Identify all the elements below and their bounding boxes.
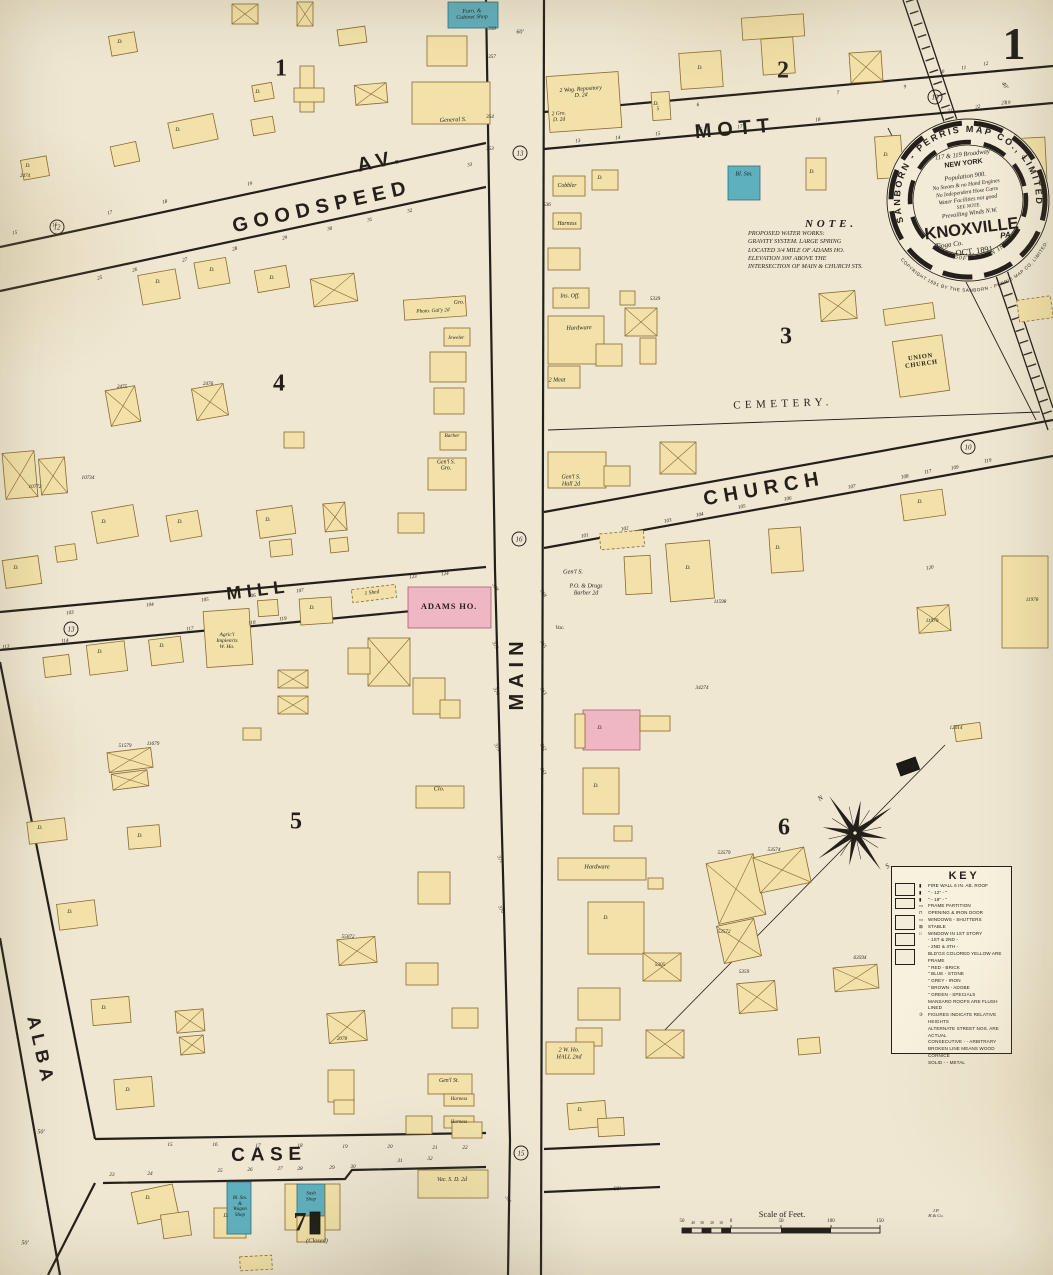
dwelling-label: D. <box>101 519 106 525</box>
lot-number: 30 <box>327 227 333 234</box>
building-label-warehouse-hall: 2 W. Ho. HALL 2nd <box>556 1047 581 1060</box>
building-label-shed: 1 Shed <box>364 589 379 597</box>
key-row-text: CONSECUTIVE - - ARBITRARY <box>928 1039 1009 1046</box>
lot-number: 2078 <box>337 1037 347 1043</box>
building-label-agricultural-implements-warehouse: Agric'l Implem'ts W. Ho. <box>216 632 237 650</box>
key-row-symbol <box>919 1039 928 1046</box>
scale-tick-30: 30 <box>700 1221 704 1225</box>
key-row-text: FIRE WALL 6 IN. AB. ROOF <box>928 883 1009 890</box>
lot-number: 23 <box>1001 101 1007 107</box>
lot-number: 10734 <box>82 476 95 482</box>
lot-number: 120 <box>926 565 935 572</box>
building-label-post-office-drugs: P.O. & Drugs Barber 2d <box>570 583 603 596</box>
lot-number: 32 <box>407 209 413 216</box>
circled-reference: 16 <box>512 532 527 547</box>
lot-number: 31 <box>367 218 373 225</box>
dwelling-label: D. <box>1021 155 1026 161</box>
key-row: ⊓OPENING & IRON DOOR <box>919 910 1009 917</box>
key-row: - 1ST & 2ND - <box>919 937 1009 944</box>
lot-number: 114 <box>61 639 69 646</box>
lot-number: 105 <box>201 598 209 605</box>
dwelling-label: D. <box>685 565 690 571</box>
dwelling-label: D. <box>309 605 314 611</box>
dwelling-label: D. <box>597 175 602 181</box>
lot-number: 53572 <box>718 930 731 936</box>
dwelling-label: D. <box>883 152 888 158</box>
lot-number: 357 <box>488 55 496 61</box>
note-body: PROPOSED WATER WORKS:GRAVITY SYSTEM. LAR… <box>742 230 920 272</box>
building-label-general-store-grocery: Gen'l S. Gro. <box>437 460 455 473</box>
lot-number: 378 <box>490 583 499 593</box>
key-row: ▭WINDOWS - SHUTTERS <box>919 917 1009 924</box>
key-row: ALTERNATE STREET NOS. ARE ACTUAL <box>919 1026 1009 1040</box>
street-label-church: CHURCH <box>702 467 827 510</box>
building-label-insurance-office: Ins. Off. <box>560 294 580 301</box>
lot-number: 104 <box>146 603 154 610</box>
lot-number: 353 <box>486 147 494 153</box>
lot-number: 27 <box>182 258 188 265</box>
scale-tick-100: 100 <box>827 1219 835 1225</box>
lot-number: 117 <box>924 469 932 476</box>
lot-number: 31 <box>397 1159 402 1165</box>
key-row: " BROWN - ADOBE <box>919 985 1009 992</box>
building-label-harness-2: Harness <box>451 1097 468 1103</box>
dwelling-label: D. <box>697 65 702 71</box>
lot-number: 21 <box>947 109 953 115</box>
lot-number: 12014 <box>950 726 963 732</box>
dwelling-label: D. <box>97 649 102 655</box>
building-label-vacant-store: Vac. S. D. 2d <box>437 1177 467 1183</box>
lot-number: 13 <box>575 139 581 145</box>
building-label-hardware-2: Hardware <box>584 863 609 870</box>
lot-number: 103 <box>66 611 74 618</box>
building-label-photo-gallery: Photo. Gal'y 2d <box>416 308 450 316</box>
dwelling-label: D. <box>177 519 182 525</box>
lot-number: 11598 <box>714 600 727 606</box>
lot-number: 119 <box>279 617 287 624</box>
lot-number: 2476 <box>203 382 213 388</box>
lot-number: 55072 <box>342 935 355 941</box>
block-number-1: 1 <box>275 56 287 83</box>
key-row: ③FIGURES INDICATE RELATIVE HEIGHTS <box>919 1012 1009 1026</box>
scale-tick-150: 150 <box>876 1219 884 1225</box>
water-works-note: NOTE. PROPOSED WATER WORKS:GRAVITY SYSTE… <box>742 218 920 272</box>
circled-reference: 12 <box>50 220 65 235</box>
lot-number: 21 <box>432 1146 437 1152</box>
lot-number: 24 <box>147 1172 152 1178</box>
lot-number: 18 <box>162 200 168 207</box>
lot-number: 11978 <box>1026 598 1039 604</box>
building-label-general-store-hall: Gen'l S. Hall 2d <box>562 474 581 487</box>
dwelling-label: D. <box>265 517 270 523</box>
lot-number: 12 <box>983 62 989 68</box>
key-row-text: " GREY - IRON <box>928 978 1009 985</box>
key-row: - 2ND & 4TH - <box>919 944 1009 951</box>
key-row: " GREEN - SPECIALS <box>919 992 1009 999</box>
key-row: CONSECUTIVE - - ARBITRARY <box>919 1039 1009 1046</box>
engraver-initials: J.P. H.& Co. <box>928 1208 943 1218</box>
circled-reference: 13 <box>64 622 79 637</box>
lot-number: 373 <box>490 641 499 651</box>
building-label-adams-house: ADAMS HO. <box>421 602 477 612</box>
labels-overlay: 1GOODSPEEDAV.MOTTCHURCHMILLMAINALBACASEC… <box>0 0 1053 1275</box>
key-row-symbol: ③ <box>919 1012 928 1026</box>
note-line: ELEVATION 300' ABOVE THE <box>742 255 920 263</box>
lot-number: 32 <box>427 1157 432 1163</box>
building-label-general-store-south: Gen'l St. <box>439 1078 459 1084</box>
street-label-goodspeed: GOODSPEED <box>230 176 413 237</box>
street-label-alba: ALBA <box>23 1014 59 1088</box>
lot-number: 103 <box>664 518 673 525</box>
lot-number: 371 <box>495 855 504 865</box>
key-row: " GREY - IRON <box>919 978 1009 985</box>
lot-number: 14 <box>615 136 621 142</box>
dwelling-label: D. <box>117 39 122 45</box>
lot-number: 124 <box>441 572 449 579</box>
key-symbol-sketch <box>895 915 915 930</box>
key-row-text: MANSARD ROOFS ARE FLUSH LINED <box>928 999 1009 1013</box>
building-label-general-store-main: Gen'l S. <box>563 568 583 575</box>
lot-number: 10772 <box>29 485 42 491</box>
key-row-text: WINDOW IN 1ST STORY <box>928 931 1009 938</box>
dwelling-label: D. <box>137 833 142 839</box>
building-label-meat: 2 Meat <box>549 378 566 385</box>
lot-number: 368 <box>538 589 547 599</box>
building-label-union-church: UNION CHURCH <box>904 352 939 371</box>
lot-number: 370 <box>496 905 505 915</box>
lot-number: 106 <box>784 496 793 503</box>
block-number-4: 4 <box>273 371 285 398</box>
lot-number: 5359 <box>739 970 749 976</box>
key-row-text: " - 12" - " <box>928 890 1009 897</box>
key-row: □WINDOW IN 1ST STORY <box>919 931 1009 938</box>
dwelling-label: D. <box>603 915 608 921</box>
building-label-grocery-2: Gro. <box>454 299 465 306</box>
key-row-symbol <box>919 944 928 951</box>
building-label-barber: Barber <box>444 434 459 440</box>
note-line: LOCATED 3/4 MILE OF ADAMS HO. <box>742 247 920 255</box>
block-number-7: 7 <box>294 1207 307 1236</box>
circled-reference: 19 <box>928 90 943 105</box>
lot-number: 374 <box>491 687 500 697</box>
lot-number: 7 <box>836 91 839 97</box>
building-label-blacksmith-wagon-shop: Bl. Sm. & Wagon Shop <box>233 1196 247 1218</box>
dwelling-label: D. <box>159 643 164 649</box>
lot-number: 311 <box>503 1195 512 1204</box>
street-width-60b: 60' <box>613 1187 620 1194</box>
key-row-symbol <box>919 985 928 992</box>
lot-number: 363 <box>538 687 547 697</box>
key-row-symbol: ▭ <box>919 917 928 924</box>
scale-tick-50l: 50 <box>680 1219 685 1225</box>
building-label-cobbler: Cobbler <box>557 183 576 189</box>
lot-number: 19 <box>247 182 253 189</box>
key-row-symbol: ▮ <box>919 890 928 897</box>
key-row-text: BLD'GS COLORED YELLOW ARE FRAME <box>928 951 1009 965</box>
key-row-text: ALTERNATE STREET NOS. ARE ACTUAL <box>928 1026 1009 1040</box>
key-symbol-sketch <box>895 933 915 946</box>
scale-tick-20: 20 <box>710 1221 714 1225</box>
dwelling-label: D. <box>775 545 780 551</box>
dwelling-label: D. <box>67 909 72 915</box>
block-number-3: 3 <box>780 324 792 351</box>
lot-number: 354 <box>486 115 494 121</box>
key-row-text: " BLUE - STONE <box>928 971 1009 978</box>
key-row-symbol <box>919 951 928 965</box>
street-width-60: 60' <box>516 30 523 37</box>
key-row-text: STABLE <box>928 924 1009 931</box>
street-label-mill: MILL <box>225 576 291 604</box>
dwelling-label: D. <box>125 1087 130 1093</box>
dwelling-label: D. <box>101 1005 106 1011</box>
dwelling-label: D. <box>255 89 260 95</box>
lot-number: 19 <box>342 1145 347 1151</box>
lot-number: 101 <box>581 533 590 540</box>
key-row-text: FIGURES INDICATE RELATIVE HEIGHTS <box>928 1012 1009 1026</box>
lot-number: 23 <box>109 1173 114 1179</box>
lot-number: 118 <box>248 621 256 628</box>
lot-number: 34274 <box>696 686 709 692</box>
lot-number: 15 <box>655 132 661 138</box>
lot-number: 28 <box>297 1167 302 1173</box>
lot-number: 17 <box>737 125 743 131</box>
lot-number: 102 <box>621 526 630 533</box>
lot-number: 107 <box>296 589 304 596</box>
lot-number: 536 <box>543 203 551 209</box>
lot-number: 109 <box>951 465 960 472</box>
key-row-text: OPENING & IRON DOOR <box>928 910 1009 917</box>
building-label-jeweler: Jeweler <box>448 336 464 342</box>
key-row: " BLUE - STONE <box>919 971 1009 978</box>
note-line: INTERSECTION OF MAIN & CHURCH STS. <box>742 263 920 271</box>
key-row-text: SOLID - - METAL <box>928 1060 1009 1067</box>
street-label-case: CASE <box>231 1144 307 1167</box>
lot-number: 15 <box>12 231 18 238</box>
dwelling-label: D. <box>145 1195 150 1201</box>
key-row-text: " GREEN - SPECIALS <box>928 992 1009 999</box>
circled-reference: 15 <box>514 1146 529 1161</box>
building-label-general-store: General S. <box>439 116 466 124</box>
lot-number: 25 <box>97 276 103 283</box>
lot-number: 15 <box>167 1143 172 1149</box>
lot-number: 25 <box>217 1169 222 1175</box>
lot-number: 108 <box>901 474 910 481</box>
key-row-symbol: ⊠ <box>919 924 928 931</box>
lot-number: 6 <box>696 103 699 109</box>
lot-number: 9 <box>903 85 906 91</box>
scale-tick-0: 0 <box>730 1219 733 1225</box>
building-label-hardware: Hardware <box>566 324 592 332</box>
key-row-symbol: ⊓ <box>919 910 928 917</box>
key-row-text: BROKEN LINE MEANS WOOD CORNICE <box>928 1046 1009 1060</box>
lot-number: 358 <box>488 27 496 33</box>
key-row-text: FRAME PARTITION <box>928 903 1009 910</box>
key-row: ▮FIRE WALL 6 IN. AB. ROOF <box>919 883 1009 890</box>
lot-number: 119 <box>984 458 992 465</box>
building-label-clothing: Clo. <box>434 785 445 792</box>
lot-number: 30 <box>350 1165 355 1171</box>
dwelling-label: D. <box>597 725 602 731</box>
dwelling-label: D. <box>223 1213 228 1219</box>
dwelling-label: D. <box>37 825 42 831</box>
note-title: NOTE. <box>742 218 920 230</box>
key-row: ▭FRAME PARTITION <box>919 903 1009 910</box>
lot-number: 361 <box>538 767 547 777</box>
lot-number: 362 <box>538 743 547 753</box>
cemetery-label: CEMETERY. <box>733 396 833 412</box>
lot-number: 106 <box>248 594 256 601</box>
lot-number: 11 <box>961 66 967 72</box>
key-row-text: " - 18" - " <box>928 897 1009 904</box>
dwelling-label: D. <box>653 101 658 107</box>
dwelling-label: D. <box>13 565 18 571</box>
lot-number: 26 <box>247 1168 252 1174</box>
building-label-furniture-cabinet-shop: Furn. & Cabinet Shop <box>456 8 488 22</box>
street-label-mott: MOTT <box>694 114 776 143</box>
key-row: BLD'GS COLORED YELLOW ARE FRAME <box>919 951 1009 965</box>
lot-number: 5 <box>656 107 659 113</box>
building-label-blacksmith: Bl. Sm. <box>735 172 752 179</box>
lot-number: 53579 <box>718 851 731 857</box>
key-row-symbol: ▭ <box>919 903 928 910</box>
key-row-symbol <box>919 1060 928 1067</box>
lot-number: 18 <box>297 1144 302 1150</box>
street-label-main: MAIN <box>506 635 528 710</box>
compass-north-letter: N <box>817 794 825 803</box>
lot-number: 2474 <box>20 174 30 180</box>
dwelling-label: D. <box>155 279 160 285</box>
lot-number: 365 <box>538 640 547 650</box>
key-row-symbol: ▮ <box>919 883 928 890</box>
key-row: ▮" - 12" - " <box>919 890 1009 897</box>
lot-number: 33 <box>467 163 473 170</box>
dwelling-label: D. <box>593 783 598 789</box>
lot-number: 375 <box>492 743 501 753</box>
street-width-50a: 50' <box>37 1130 44 1137</box>
dwelling-label: D. <box>25 163 30 169</box>
key-row: SOLID - - METAL <box>919 1060 1009 1067</box>
closed-annotation: (Closed) <box>306 1237 328 1244</box>
key-row-symbol <box>919 1046 928 1060</box>
lot-number: 29 <box>329 1166 334 1172</box>
dwelling-label: D. <box>175 127 180 133</box>
lot-number: 5339 <box>650 297 660 303</box>
lot-number: 16 <box>697 128 703 134</box>
sheet-number: 1 <box>1003 18 1026 70</box>
circled-reference: 13 <box>513 146 528 161</box>
building-label-sash-shop: Sash Shop <box>306 1191 316 1202</box>
circled-reference: 10 <box>961 440 976 455</box>
lot-number: 20 <box>387 1145 392 1151</box>
lot-number: 51579 <box>119 744 132 750</box>
lot-number: 117 <box>186 627 194 634</box>
building-label-harness-3: Harness <box>451 1120 468 1126</box>
lot-number: 22 <box>462 1146 467 1152</box>
key-row-symbol <box>919 1026 928 1040</box>
lot-number: 63594 <box>854 956 867 962</box>
lot-number: 26 <box>132 268 138 275</box>
lot-number: 11979 <box>926 619 939 625</box>
dwelling-label: D. <box>577 1107 582 1113</box>
street-width-40: 40' <box>999 81 1009 91</box>
key-title: KEY <box>919 870 1009 882</box>
map-key-legend: KEY ▮FIRE WALL 6 IN. AB. ROOF▮" - 12" - … <box>891 866 1012 1054</box>
lot-number: 53574 <box>768 848 781 854</box>
key-row-symbol <box>919 978 928 985</box>
key-row: " RED - BRICK <box>919 965 1009 972</box>
lot-number: 104 <box>696 512 705 519</box>
key-row-text: " BROWN - ADOBE <box>928 985 1009 992</box>
key-row-text: WINDOWS - SHUTTERS <box>928 917 1009 924</box>
dwelling-label: D. <box>209 267 214 273</box>
key-row-text: - 2ND & 4TH - <box>928 944 1009 951</box>
lot-number: 107 <box>848 484 857 491</box>
key-row-symbol <box>919 937 928 944</box>
key-row: ⊠STABLE <box>919 924 1009 931</box>
scale-tick-50: 50 <box>779 1219 784 1225</box>
lot-number: 22 <box>975 105 981 111</box>
key-row-symbol <box>919 965 928 972</box>
key-symbol-sketch <box>895 949 915 965</box>
lot-number: 123 <box>409 575 417 582</box>
scale-tick-10: 10 <box>719 1221 723 1225</box>
lot-number: 16 <box>212 1143 217 1149</box>
note-line: PROPOSED WATER WORKS: <box>742 230 920 238</box>
key-row-text: " RED - BRICK <box>928 965 1009 972</box>
dwelling-label: D. <box>917 499 922 505</box>
building-label-harness: Harness <box>557 221 576 227</box>
key-row-symbol <box>919 992 928 999</box>
key-row-symbol: □ <box>919 931 928 938</box>
scale-tick-40: 40 <box>691 1221 695 1225</box>
dwelling-label: D. <box>269 275 274 281</box>
lot-number: 27 <box>277 1167 282 1173</box>
building-label-wagon-repository: 2 Wag. Repository D. 2d <box>559 85 602 101</box>
lot-number: 17 <box>107 211 113 218</box>
lot-number: 29 <box>282 236 288 243</box>
lot-number: 28 <box>232 247 238 254</box>
key-row-symbol <box>919 999 928 1013</box>
block-number-6: 6 <box>778 815 790 842</box>
key-row-text: - 1ST & 2ND - <box>928 937 1009 944</box>
key-symbol-sketch <box>895 898 915 909</box>
lot-number: 17 <box>255 1144 260 1150</box>
key-row-symbol <box>919 971 928 978</box>
street-width-50b: 50' <box>21 1241 28 1248</box>
lot-number: 2475 <box>117 385 127 391</box>
lot-number: 105 <box>738 504 747 511</box>
block-number-2: 2 <box>777 58 789 85</box>
block-number-5: 5 <box>290 809 302 836</box>
key-row: BROKEN LINE MEANS WOOD CORNICE <box>919 1046 1009 1060</box>
key-symbol-sketch <box>895 883 915 896</box>
note-line: GRAVITY SYSTEM. LARGE SPRING <box>742 238 920 246</box>
lot-number: 5305 <box>655 963 665 969</box>
key-row: MANSARD ROOFS ARE FLUSH LINED <box>919 999 1009 1013</box>
lot-number: 113 <box>2 645 10 652</box>
street-label-goodspeed-av: AV. <box>355 145 407 177</box>
sanborn-map-sheet: SANBORN - PERRIS MAP CO., LIMITED SCALE … <box>0 0 1053 1275</box>
lot-number: 11679 <box>147 742 160 748</box>
building-label-vacant: Vac. <box>555 625 564 631</box>
key-row: ▮" - 18" - " <box>919 897 1009 904</box>
key-row-symbol: ▮ <box>919 897 928 904</box>
lot-number: 10 <box>939 70 945 76</box>
building-label-grocery: 2 Gro. D. 2d <box>552 110 567 123</box>
dwelling-label: D. <box>809 169 814 175</box>
key-rows: ▮FIRE WALL 6 IN. AB. ROOF▮" - 12" - "▮" … <box>919 883 1009 1067</box>
lot-number: 18 <box>815 118 821 124</box>
